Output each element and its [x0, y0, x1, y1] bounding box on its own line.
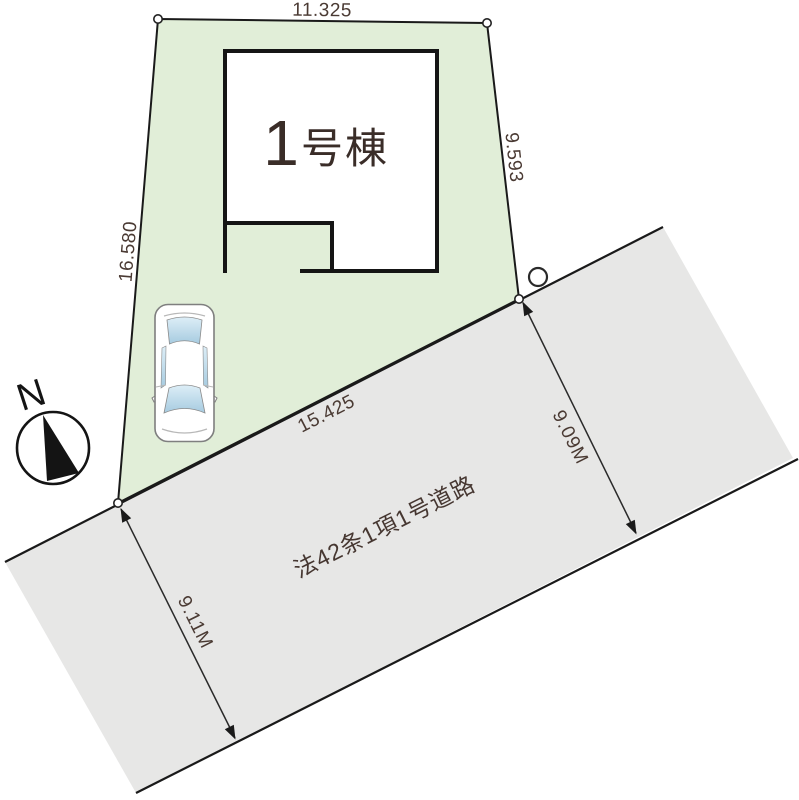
north-label: N — [12, 371, 51, 419]
boundary-corner-marker — [154, 15, 162, 23]
car-windshield — [164, 385, 205, 413]
car-rear-window — [167, 317, 202, 344]
boundary-corner-marker — [114, 499, 122, 507]
pole-circle-marker — [529, 268, 547, 286]
car-side-window-left — [161, 346, 166, 388]
dimension-top-label: 11.325 — [292, 0, 352, 21]
compass: N — [12, 371, 89, 484]
car-illustration — [152, 305, 217, 442]
boundary-corner-marker — [483, 19, 491, 27]
building-number: 1 — [263, 107, 299, 179]
building-number-suffix: 号棟 — [301, 125, 389, 172]
car-side-window-right — [203, 346, 208, 388]
site-plan-diagram: 1 号棟 11.325 9.593 16.580 15.425 9.09M 9.… — [0, 0, 799, 800]
site-plan-canvas: 1 号棟 11.325 9.593 16.580 15.425 9.09M 9.… — [0, 0, 799, 800]
boundary-corner-marker — [515, 295, 523, 303]
